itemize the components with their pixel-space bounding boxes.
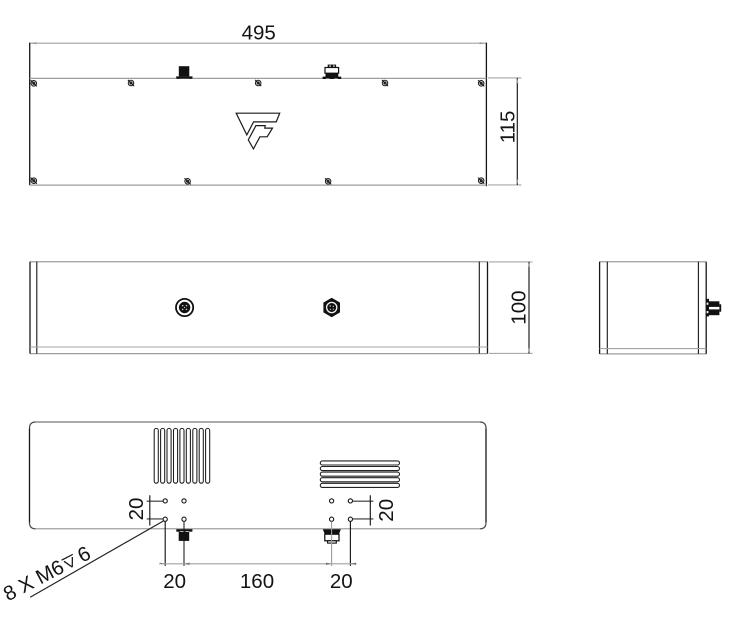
svg-text:115: 115 <box>496 111 519 144</box>
svg-text:20: 20 <box>330 570 353 593</box>
svg-text:20: 20 <box>375 499 398 522</box>
svg-text:8 X M6: 8 X M6 <box>0 556 68 606</box>
svg-text:160: 160 <box>240 570 274 593</box>
svg-text:20: 20 <box>163 570 186 593</box>
svg-text:20: 20 <box>125 498 148 521</box>
svg-text:100: 100 <box>508 290 531 324</box>
svg-text:495: 495 <box>242 22 276 45</box>
svg-text:6: 6 <box>74 542 95 568</box>
